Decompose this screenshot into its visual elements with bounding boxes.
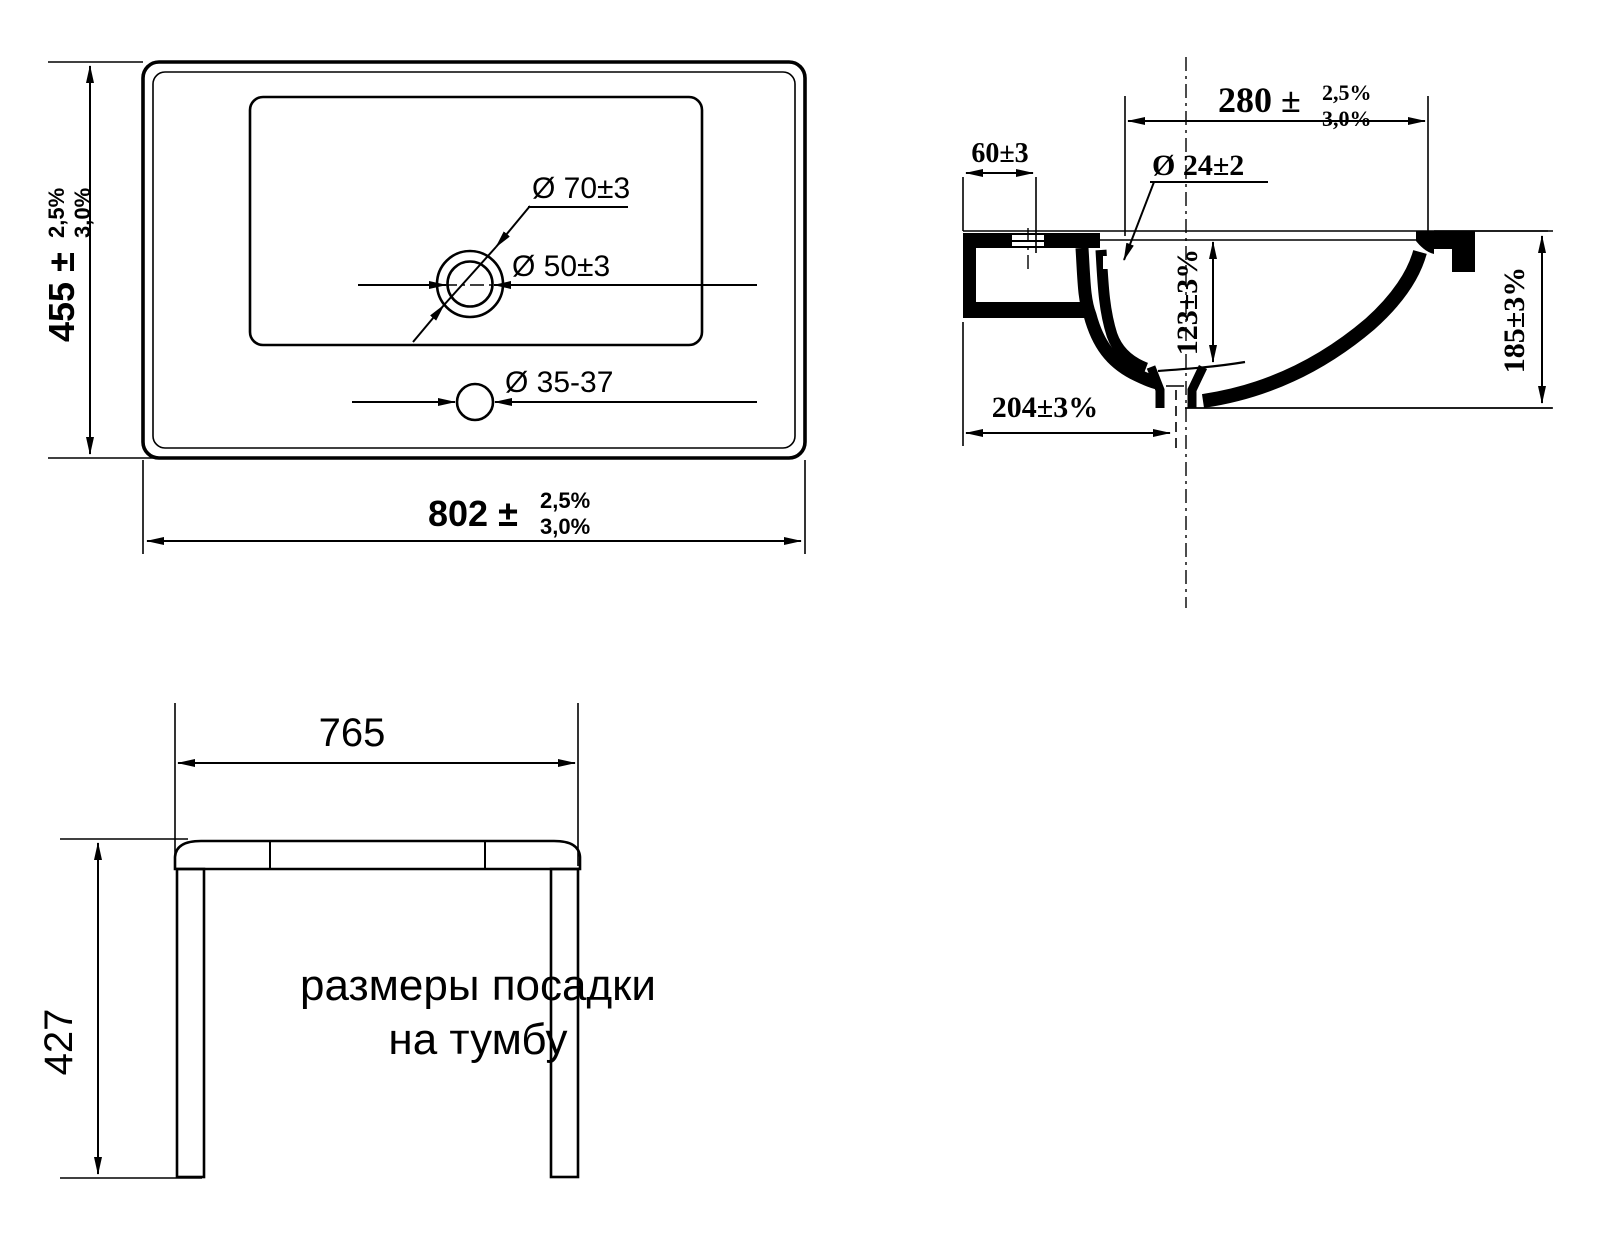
drain-funnel-right [1192, 367, 1203, 408]
bowl-front-wall [1203, 252, 1420, 401]
dim-455-tol-upper: 2,5% [44, 188, 69, 238]
dim-427-label: 427 [37, 1009, 81, 1076]
dim-123-label: 123±3% [1171, 249, 1204, 355]
dim-802-tol-upper: 2,5% [540, 488, 590, 513]
technical-drawing-page: Ø 70±3 Ø 50±3 Ø 35-37 455 ± 2,5% 3,0% 80… [0, 0, 1600, 1250]
drain-inner-circle [448, 262, 493, 307]
mount-view: 765 427 размеры посадки на тумбу [37, 703, 656, 1178]
leader-d70 [496, 206, 530, 247]
dim-280-value: 280 ± [1218, 80, 1301, 120]
top-view: Ø 70±3 Ø 50±3 Ø 35-37 455 ± 2,5% 3,0% 80… [41, 62, 805, 554]
front-rim-hook [1416, 231, 1475, 272]
faucet-dia-label: Ø 35-37 [505, 366, 613, 399]
dim-802-tol-lower: 3,0% [540, 514, 590, 539]
dim-280-tol-upper: 2,5% [1322, 80, 1372, 105]
leader-d50 [413, 305, 444, 342]
dim-802-label: 802 ± 2,5% 3,0% [428, 488, 590, 539]
washbasin-drawing: Ø 70±3 Ø 50±3 Ø 35-37 455 ± 2,5% 3,0% 80… [0, 0, 1600, 1250]
drain-outer-dia-label: Ø 70±3 [532, 172, 630, 205]
basin-edge [250, 97, 702, 345]
dim-427-value: 427 [37, 1009, 81, 1076]
dim-765-label: 765 [319, 711, 386, 755]
dim-802-value: 802 ± [428, 493, 518, 534]
overflow-dia-label: Ø 24±2 [1152, 149, 1244, 182]
mount-caption-line2: на тумбу [388, 1015, 567, 1064]
mounting-flange [963, 302, 1087, 318]
sink-outer-edge [143, 62, 805, 458]
cabinet-left-leg [177, 869, 204, 1177]
dim-185-label: 185±3% [1498, 267, 1531, 373]
drain-inner-dia-label: Ø 50±3 [512, 250, 610, 283]
sink-front-silhouette [175, 841, 580, 869]
dim-280-label: 280 ± 2,5% 3,0% [1218, 80, 1372, 131]
dim-455-value: 455 ± [41, 252, 82, 342]
mount-caption-line1: размеры посадки [300, 961, 656, 1010]
dim-280-tol-lower: 3,0% [1322, 106, 1372, 131]
dim-60-label: 60±3 [971, 138, 1028, 169]
dim-204-label: 204±3% [992, 391, 1098, 424]
overflow-hole [1103, 256, 1116, 269]
side-view: 280 ± 2,5% 3,0% 60±3 Ø 24±2 123±3% 185±3… [963, 57, 1553, 608]
faucet-hole-circle [457, 384, 493, 420]
dim-123-value: 123±3% [1171, 249, 1204, 355]
leader-d24 [1124, 182, 1154, 260]
dim-455-tol-lower: 3,0% [70, 188, 95, 238]
dim-455-label: 455 ± 2,5% 3,0% [41, 188, 95, 342]
mount-caption: размеры посадки на тумбу [300, 961, 656, 1064]
dim-185-value: 185±3% [1498, 267, 1531, 373]
